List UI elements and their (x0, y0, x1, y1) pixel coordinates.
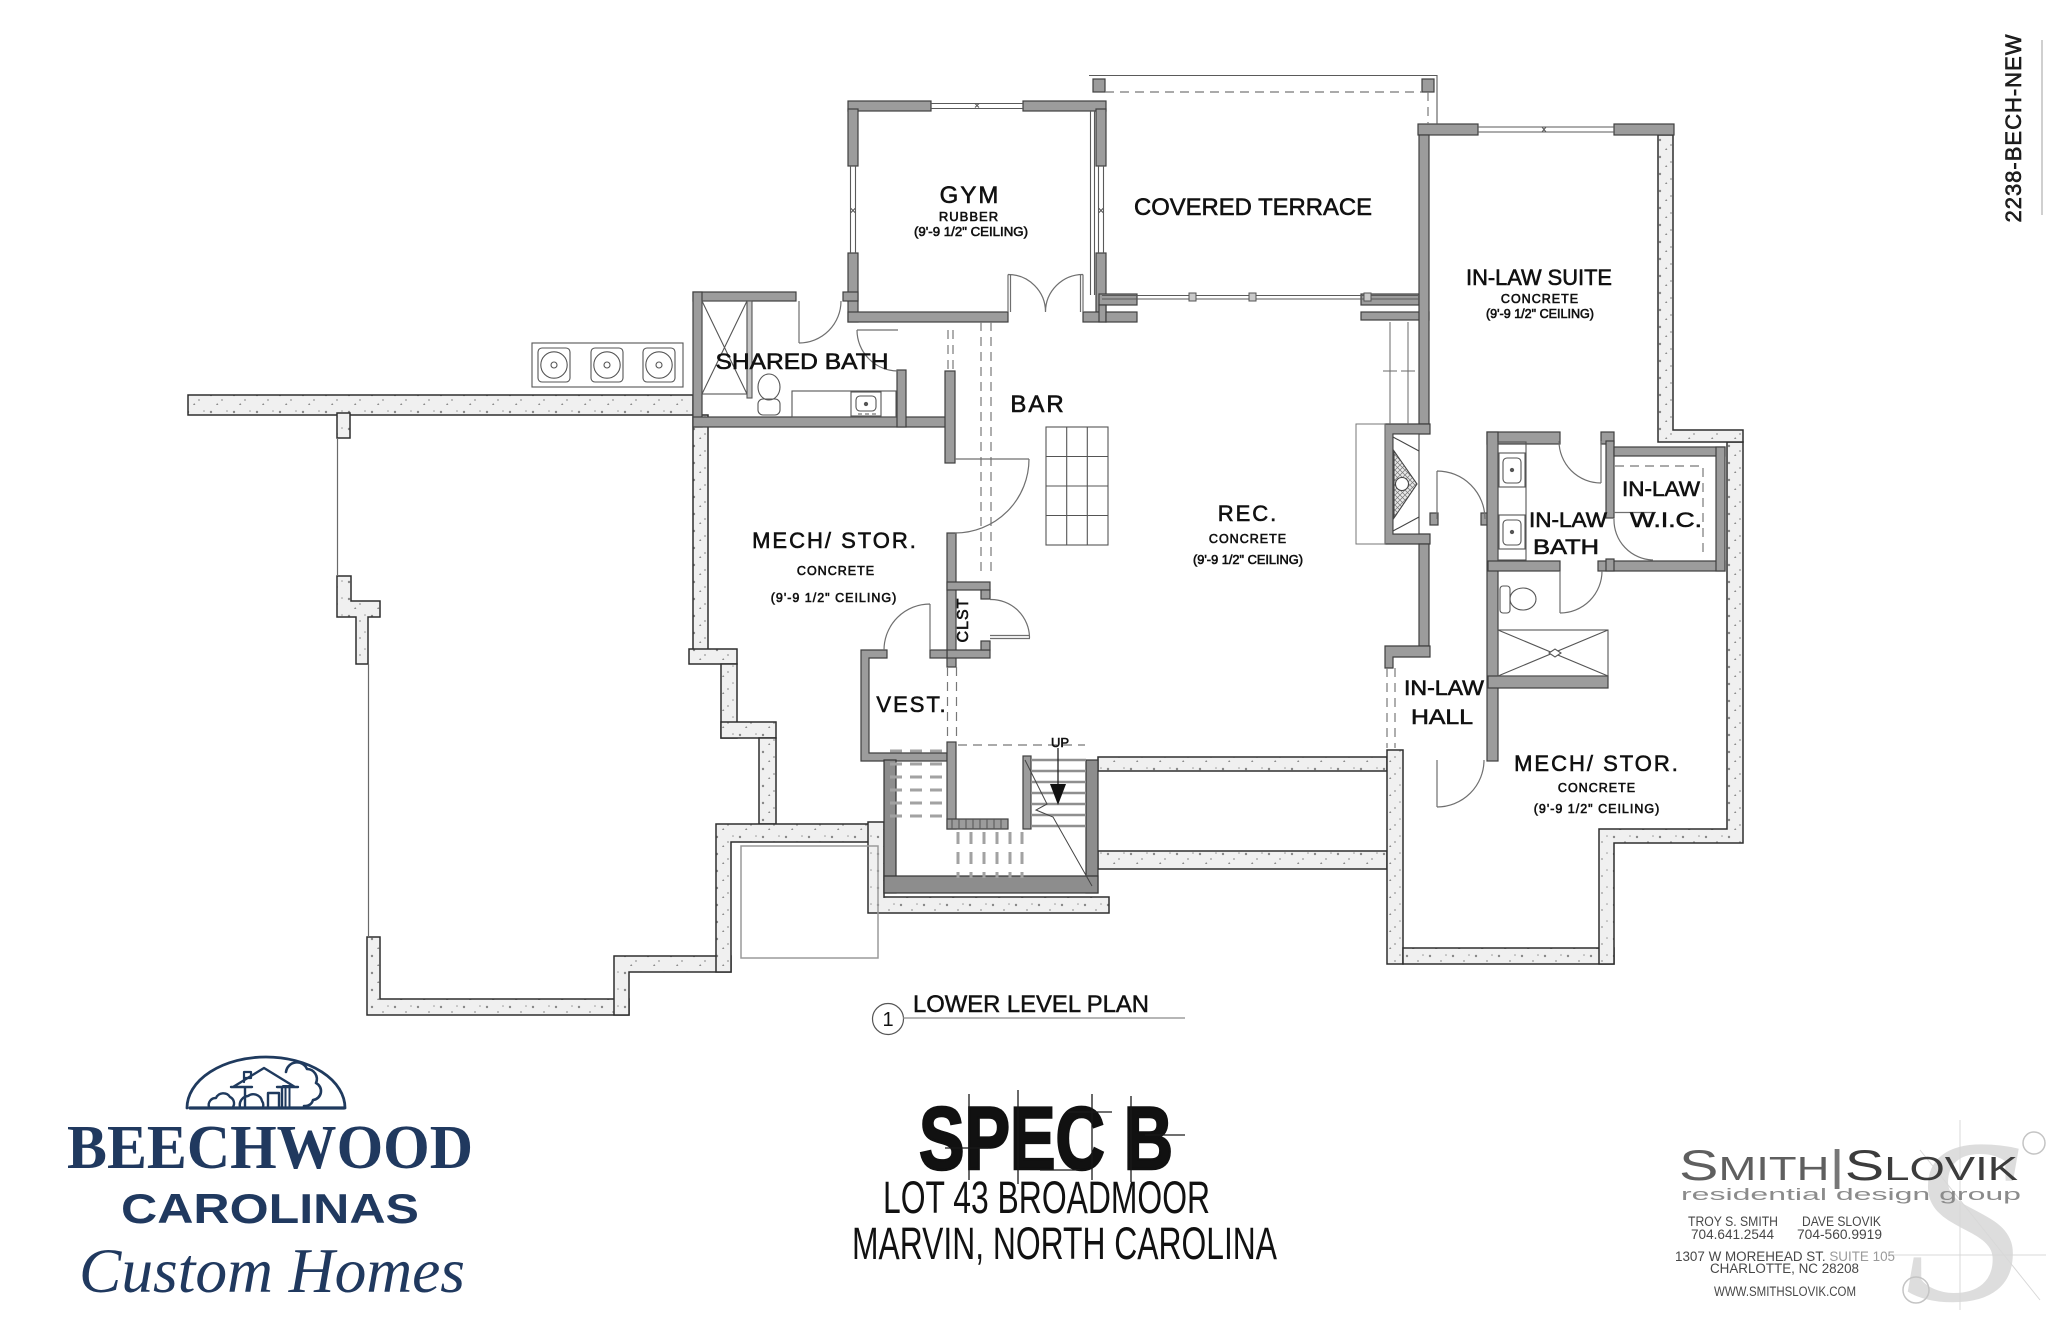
svg-text:2238-BECH-NEW: 2238-BECH-NEW (2001, 33, 2026, 222)
svg-text:UP: UP (1051, 735, 1069, 750)
svg-text:CHARLOTTE, NC 28208: CHARLOTTE, NC 28208 (1710, 1261, 1859, 1276)
svg-text:W.I.C.: W.I.C. (1630, 509, 1702, 532)
svg-text:704-560.9919: 704-560.9919 (1797, 1227, 1882, 1242)
svg-text:VEST.: VEST. (876, 692, 947, 717)
svg-text:residential design group: residential design group (1681, 1186, 2021, 1204)
svg-text:(9'-9 1/2" CEILING): (9'-9 1/2" CEILING) (914, 224, 1028, 239)
svg-text:MECH/ STOR.: MECH/ STOR. (1514, 751, 1680, 776)
svg-text:MECH/ STOR.: MECH/ STOR. (752, 528, 918, 553)
svg-text:(9'-9 1/2" CEILING): (9'-9 1/2" CEILING) (771, 591, 898, 605)
svg-text:BAR: BAR (1010, 391, 1065, 418)
svg-text:1: 1 (882, 1009, 893, 1031)
svg-text:SHARED BATH: SHARED BATH (716, 349, 889, 374)
svg-text:IN-LAW: IN-LAW (1622, 478, 1700, 501)
svg-text:(9'-9 1/2" CEILING): (9'-9 1/2" CEILING) (1193, 553, 1303, 567)
svg-text:704.641.2544: 704.641.2544 (1691, 1227, 1774, 1242)
svg-text:CONCRETE: CONCRETE (797, 564, 875, 578)
svg-text:LOT 43 BROADMOOR: LOT 43 BROADMOOR (883, 1172, 1210, 1223)
svg-text:CONCRETE: CONCRETE (1209, 532, 1287, 546)
svg-text:IN-LAW: IN-LAW (1529, 509, 1607, 532)
svg-text:HALL: HALL (1411, 706, 1473, 729)
svg-text:BEECHWOOD: BEECHWOOD (67, 1114, 473, 1182)
svg-text:CONCRETE: CONCRETE (1501, 292, 1579, 306)
svg-text:BATH: BATH (1533, 536, 1599, 559)
svg-text:LOWER LEVEL PLAN: LOWER LEVEL PLAN (913, 991, 1149, 1018)
svg-text:CAROLINAS: CAROLINAS (121, 1185, 419, 1232)
svg-text:Custom Homes: Custom Homes (79, 1236, 465, 1306)
svg-text:REC.: REC. (1218, 501, 1279, 526)
svg-text:(9'-9 1/2" CEILING): (9'-9 1/2" CEILING) (1534, 802, 1661, 816)
svg-text:IN-LAW SUITE: IN-LAW SUITE (1466, 265, 1612, 290)
svg-text:S: S (1905, 1091, 2023, 1326)
svg-text:WWW.SMITHSLOVIK.COM: WWW.SMITHSLOVIK.COM (1714, 1284, 1856, 1299)
svg-text:CONCRETE: CONCRETE (1558, 781, 1636, 795)
svg-text:COVERED TERRACE: COVERED TERRACE (1134, 194, 1372, 221)
svg-text:RUBBER: RUBBER (939, 209, 999, 224)
svg-text:CLST: CLST (955, 598, 972, 643)
svg-text:IN-LAW: IN-LAW (1404, 677, 1484, 700)
svg-text:GYM: GYM (940, 182, 1001, 209)
svg-text:MARVIN, NORTH CAROLINA: MARVIN, NORTH CAROLINA (852, 1218, 1277, 1269)
svg-text:SMITH|SLOVIK: SMITH|SLOVIK (1679, 1142, 2018, 1190)
svg-text:(9'-9 1/2" CEILING): (9'-9 1/2" CEILING) (1486, 307, 1594, 321)
